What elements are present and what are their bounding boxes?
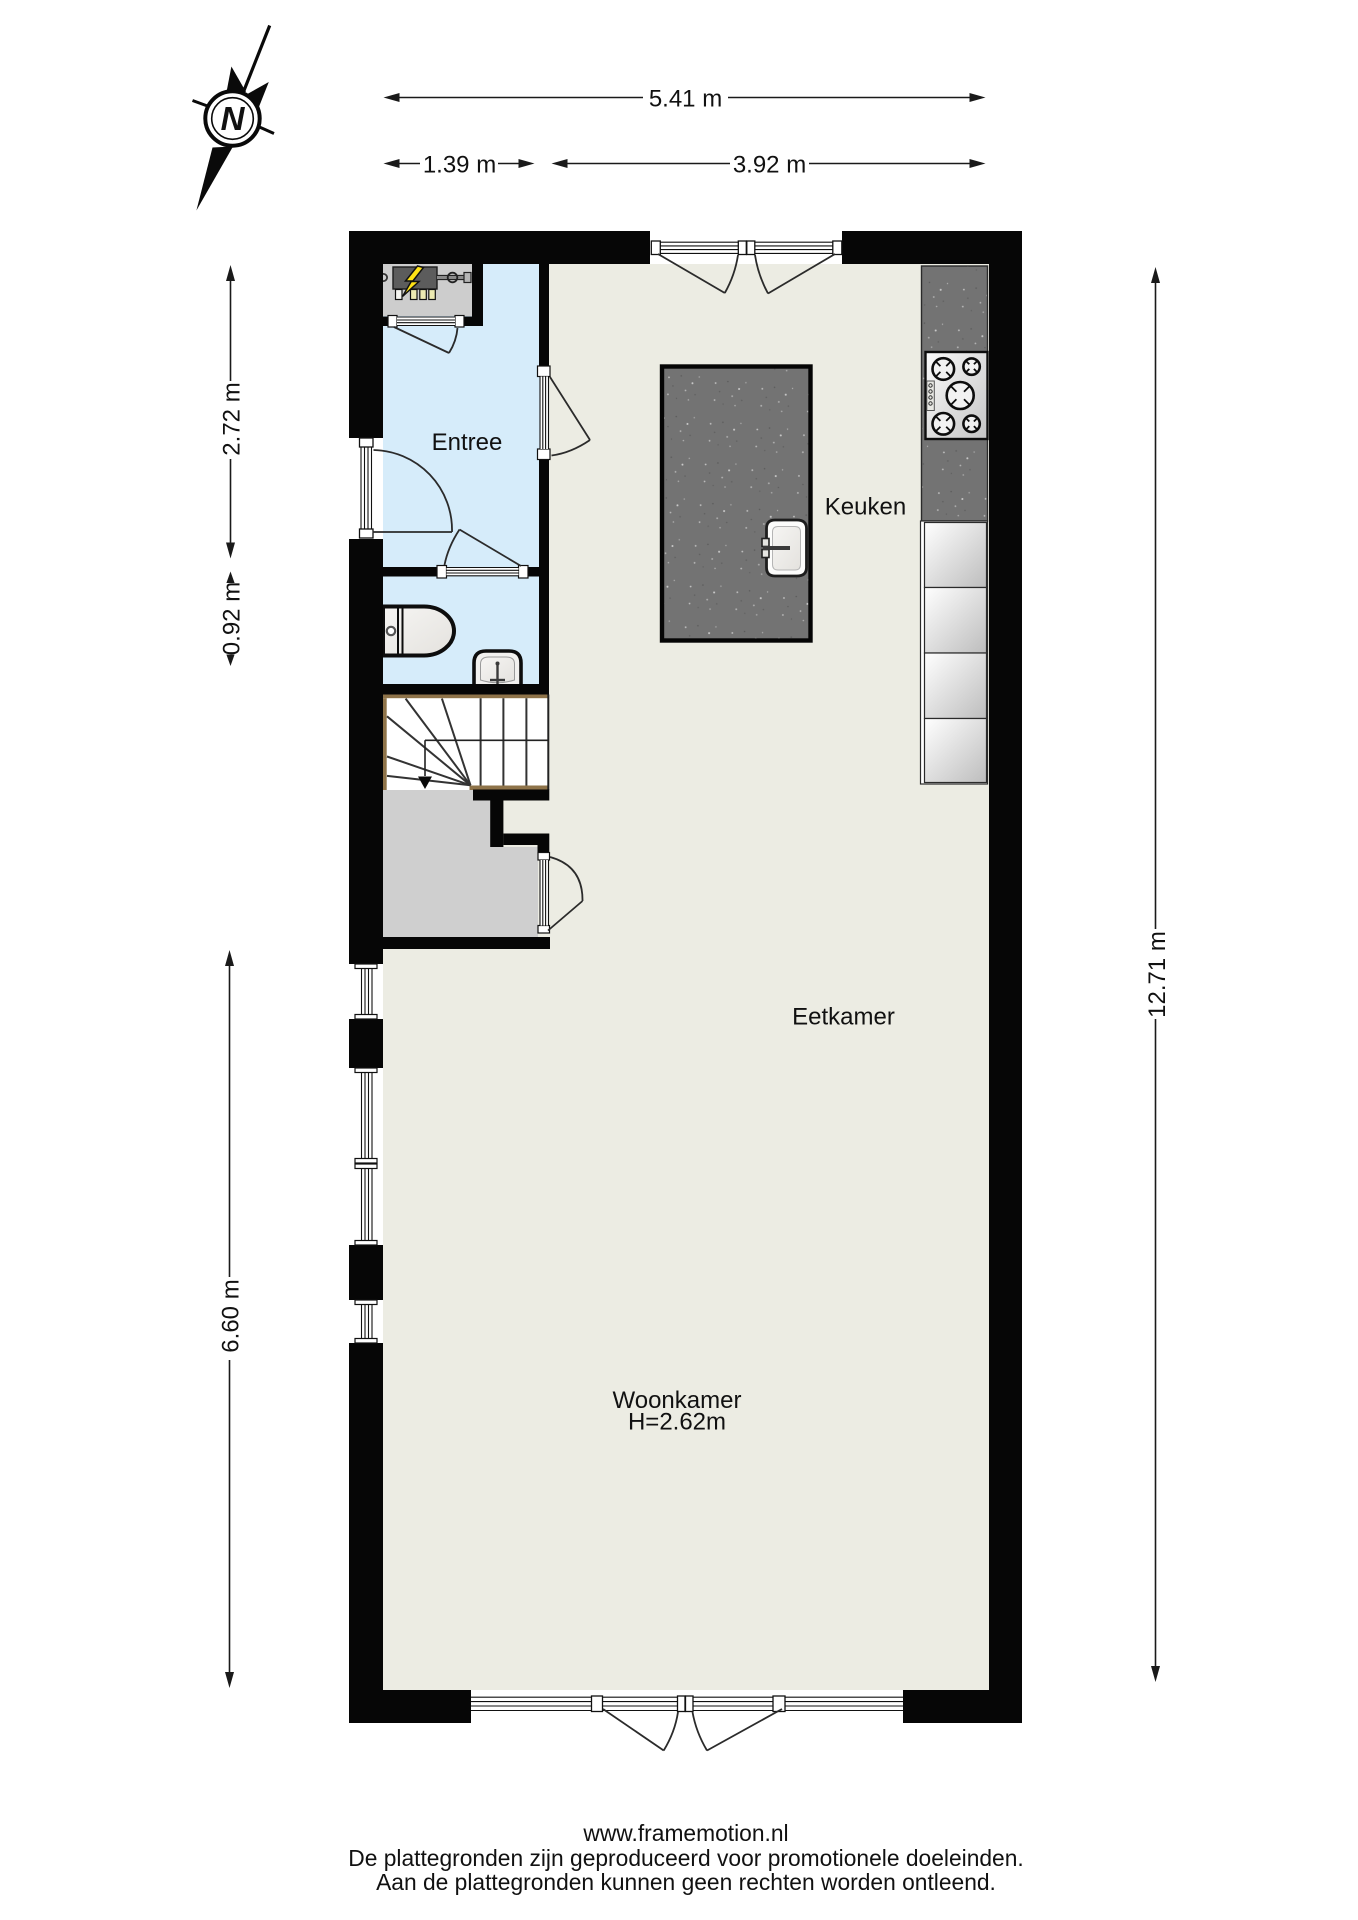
svg-text:2.72 m: 2.72 m — [219, 382, 246, 455]
svg-text:De plattegronden zijn geproduc: De plattegronden zijn geproduceerd voor … — [348, 1845, 1024, 1871]
svg-text:Aan de plattegronden kunnen ge: Aan de plattegronden kunnen geen rechten… — [376, 1869, 996, 1895]
svg-text:0.92 m: 0.92 m — [219, 582, 246, 655]
svg-text:www.framemotion.nl: www.framemotion.nl — [582, 1820, 788, 1846]
svg-text:N: N — [221, 100, 246, 137]
svg-text:6.60 m: 6.60 m — [218, 1279, 245, 1352]
svg-text:Eetkamer: Eetkamer — [792, 1004, 895, 1031]
svg-text:12.71 m: 12.71 m — [1144, 931, 1171, 1018]
svg-text:Keuken: Keuken — [825, 494, 906, 521]
svg-text:3.92 m: 3.92 m — [733, 152, 806, 179]
svg-text:5.41 m: 5.41 m — [649, 86, 722, 113]
svg-text:1.39 m: 1.39 m — [423, 152, 496, 179]
svg-text:Entree: Entree — [432, 429, 503, 456]
svg-text:H=2.62m: H=2.62m — [628, 1409, 726, 1436]
